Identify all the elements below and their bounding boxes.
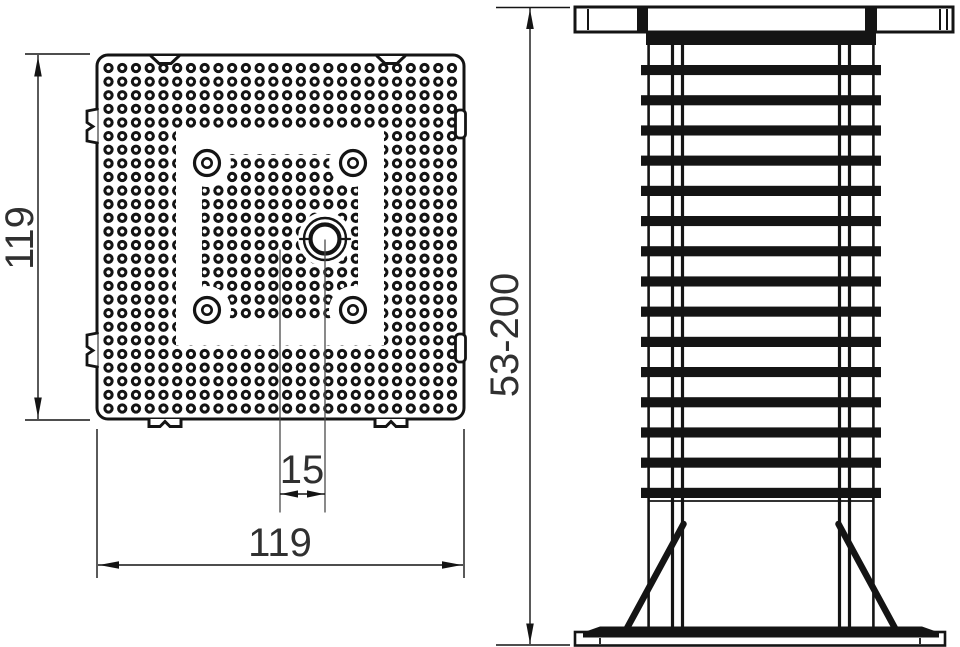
- perforation-dot-hole: [134, 80, 138, 84]
- perforation-dot-hole: [271, 297, 275, 301]
- perforation-dot-hole: [395, 325, 399, 329]
- perforation-dot-hole: [409, 393, 413, 397]
- perforation-dot-hole: [422, 175, 426, 179]
- perforation-dot-hole: [436, 243, 440, 247]
- perforation-dot-hole: [120, 393, 124, 397]
- top-flange: [575, 7, 953, 32]
- perforation-dot-hole: [161, 393, 165, 397]
- perforation-dot-hole: [106, 161, 110, 165]
- perforation-dot-hole: [436, 284, 440, 288]
- dim-height-range: 53-200: [483, 8, 570, 646]
- perforation-dot-hole: [203, 80, 207, 84]
- perforation-dot-hole: [409, 229, 413, 233]
- perforation-dot-hole: [354, 202, 358, 206]
- thread-groove: [646, 377, 876, 397]
- perforation-dot-hole: [354, 80, 358, 84]
- perforation-dot-hole: [230, 406, 234, 410]
- perforation-dot-hole: [409, 66, 413, 70]
- perforation-dot-hole: [161, 325, 165, 329]
- perforation-dot-hole: [148, 216, 152, 220]
- perforation-dot-hole: [340, 66, 344, 70]
- perforation-dot-hole: [258, 120, 262, 124]
- perforation-dot-hole: [134, 216, 138, 220]
- perforation-dot-hole: [271, 393, 275, 397]
- perforation-dot-hole: [409, 148, 413, 152]
- perforation-dot-hole: [326, 93, 330, 97]
- perforation-dot-hole: [313, 93, 317, 97]
- perforation-dot-hole: [271, 379, 275, 383]
- perforation-dot-hole: [395, 393, 399, 397]
- perforation-dot-hole: [216, 202, 220, 206]
- thread-ridge: [641, 397, 881, 407]
- perforation-dot-hole: [120, 188, 124, 192]
- perforation-dot-hole: [120, 270, 124, 274]
- perforation-dot-hole: [409, 120, 413, 124]
- perforation-dot-hole: [409, 188, 413, 192]
- perforation-dot-hole: [175, 352, 179, 356]
- perforation-dot-hole: [285, 257, 289, 261]
- perforation-dot-hole: [134, 243, 138, 247]
- perforation-dot-hole: [106, 297, 110, 301]
- perforation-dot-hole: [450, 216, 454, 220]
- perforation-dot-hole: [450, 393, 454, 397]
- perforation-dot-hole: [285, 297, 289, 301]
- perforation-dot-hole: [313, 270, 317, 274]
- perforation-dot-hole: [258, 80, 262, 84]
- perforation-dot-hole: [436, 93, 440, 97]
- perforation-dot-hole: [354, 188, 358, 192]
- perforation-dot-hole: [175, 80, 179, 84]
- perforation-dot-hole: [148, 366, 152, 370]
- boss-inner: [202, 158, 211, 167]
- perforation-dot-hole: [299, 297, 303, 301]
- perforation-dot-hole: [436, 175, 440, 179]
- perforation-dot-hole: [148, 80, 152, 84]
- arrowhead: [526, 624, 534, 644]
- perforation-dot-hole: [148, 297, 152, 301]
- perforation-dot-hole: [244, 243, 248, 247]
- perforation-dot-hole: [106, 134, 110, 138]
- thread-ridge: [641, 276, 881, 286]
- perforation-dot-hole: [106, 120, 110, 124]
- perforation-dot-hole: [134, 393, 138, 397]
- perforation-dot-hole: [203, 406, 207, 410]
- perforation-dot-hole: [134, 175, 138, 179]
- perforation-dot-hole: [203, 393, 207, 397]
- perforation-dot-hole: [134, 366, 138, 370]
- perforation-dot-hole: [354, 406, 358, 410]
- perforation-dot-hole: [436, 393, 440, 397]
- perforation-dot-hole: [230, 120, 234, 124]
- perforation-dot-hole: [203, 216, 207, 220]
- perforation-dot-hole: [436, 202, 440, 206]
- perforation-dot-hole: [120, 107, 124, 111]
- thread-groove: [646, 136, 876, 156]
- perforation-dot-hole: [230, 229, 234, 233]
- perforation-dot-hole: [285, 229, 289, 233]
- perforation-dot-hole: [230, 216, 234, 220]
- perforation-dot-hole: [148, 311, 152, 315]
- perforation-dot-hole: [106, 366, 110, 370]
- perforation-dot-hole: [450, 175, 454, 179]
- perforation-dot-hole: [313, 297, 317, 301]
- perforation-dot-hole: [148, 284, 152, 288]
- perforation-dot-hole: [203, 257, 207, 261]
- perforation-dot-hole: [148, 66, 152, 70]
- perforation-dot-hole: [409, 379, 413, 383]
- perforation-dot-hole: [120, 161, 124, 165]
- perforation-dot-hole: [354, 257, 358, 261]
- perforation-dot-hole: [106, 66, 110, 70]
- perforation-dot-hole: [134, 406, 138, 410]
- tab-bottom: [149, 419, 181, 427]
- thread-ridge: [641, 427, 881, 437]
- gusset-right: [839, 524, 897, 630]
- perforation-dot-hole: [106, 93, 110, 97]
- perforation-dot-hole: [436, 80, 440, 84]
- dim-center-offset: 15: [280, 448, 325, 498]
- perforation-dot-hole: [258, 202, 262, 206]
- perforation-dot-hole: [230, 352, 234, 356]
- perforation-dot-hole: [161, 257, 165, 261]
- perforation-dot-hole: [299, 352, 303, 356]
- perforation-dot-hole: [244, 352, 248, 356]
- perforation-dot-hole: [326, 80, 330, 84]
- perforation-dot-hole: [134, 257, 138, 261]
- perforation-dot-hole: [148, 352, 152, 356]
- perforation-dot-hole: [422, 202, 426, 206]
- perforation-dot-hole: [395, 229, 399, 233]
- perforation-dot-hole: [340, 93, 344, 97]
- perforation-dot-hole: [271, 270, 275, 274]
- perforation-dot-hole: [450, 338, 454, 342]
- perforation-dot-hole: [354, 120, 358, 124]
- perforation-dot-hole: [285, 202, 289, 206]
- perforation-dot-hole: [120, 175, 124, 179]
- perforation-dot-hole: [216, 66, 220, 70]
- perforation-dot-hole: [258, 243, 262, 247]
- perforation-dot-hole: [367, 393, 371, 397]
- perforation-dot-hole: [285, 80, 289, 84]
- perforation-dot-hole: [395, 175, 399, 179]
- perforation-dot-hole: [395, 188, 399, 192]
- perforation-dot-hole: [148, 338, 152, 342]
- perforation-dot-hole: [216, 379, 220, 383]
- perforation-dot-hole: [285, 188, 289, 192]
- drawing-canvas: 119 119 15: [0, 0, 960, 647]
- perforation-dot-hole: [203, 120, 207, 124]
- perforation-dot-hole: [409, 243, 413, 247]
- arrowhead: [526, 9, 534, 29]
- perforation-dot-hole: [340, 366, 344, 370]
- perforation-dot-hole: [285, 243, 289, 247]
- dim-label-height-range: 53-200: [483, 273, 527, 398]
- perforation-dot-hole: [313, 161, 317, 165]
- perforation-dot-hole: [161, 297, 165, 301]
- perforation-dot-hole: [422, 325, 426, 329]
- perforation-dot-hole: [106, 270, 110, 274]
- perforation-dot-hole: [381, 366, 385, 370]
- thread-ridge: [641, 125, 881, 135]
- perforation-dot-hole: [409, 216, 413, 220]
- perforation-dot-hole: [120, 325, 124, 329]
- perforation-dot-hole: [409, 352, 413, 356]
- perforation-dot-hole: [381, 393, 385, 397]
- perforation-dot-hole: [436, 366, 440, 370]
- perforation-dot-hole: [409, 175, 413, 179]
- perforation-dot-hole: [258, 66, 262, 70]
- perforation-dot-hole: [340, 80, 344, 84]
- perforation-dot-hole: [326, 297, 330, 301]
- perforation-dot-hole: [340, 202, 344, 206]
- perforation-dot-hole: [161, 352, 165, 356]
- perforation-dot-hole: [244, 229, 248, 233]
- thread-groove: [646, 287, 876, 307]
- perforation-dot-hole: [258, 284, 262, 288]
- perforation-dot-hole: [161, 175, 165, 179]
- perforation-dot-hole: [299, 107, 303, 111]
- perforation-dot-hole: [230, 107, 234, 111]
- perforation-dot-hole: [422, 352, 426, 356]
- perforation-dot-hole: [354, 352, 358, 356]
- perforation-dot-hole: [299, 66, 303, 70]
- perforation-dot-hole: [230, 66, 234, 70]
- perforation-dot-hole: [161, 161, 165, 165]
- perforation-dot-hole: [161, 80, 165, 84]
- perforation-dot-hole: [340, 120, 344, 124]
- perforation-dot-hole: [203, 366, 207, 370]
- perforation-dot-hole: [285, 284, 289, 288]
- perforation-dot-hole: [367, 80, 371, 84]
- perforation-dot-hole: [271, 93, 275, 97]
- perforation-dot-hole: [120, 80, 124, 84]
- perforation-dot-hole: [189, 379, 193, 383]
- perforation-dot-hole: [271, 66, 275, 70]
- perforation-dot-hole: [436, 120, 440, 124]
- perforation-dot-hole: [216, 393, 220, 397]
- perforation-dot-hole: [409, 107, 413, 111]
- perforation-dot-hole: [120, 366, 124, 370]
- base-plate: [575, 627, 945, 646]
- perforation-dot-hole: [244, 257, 248, 261]
- perforation-dot-hole: [189, 107, 193, 111]
- perforation-dot-hole: [216, 243, 220, 247]
- perforation-dot-hole: [299, 257, 303, 261]
- thread-stack: [641, 45, 881, 498]
- perforation-dot-hole: [216, 229, 220, 233]
- perforation-dot-hole: [216, 80, 220, 84]
- perforation-dot-hole: [148, 379, 152, 383]
- perforation-dot-hole: [299, 366, 303, 370]
- perforation-dot-hole: [340, 270, 344, 274]
- perforation-dot-hole: [313, 188, 317, 192]
- perforation-dot-hole: [395, 352, 399, 356]
- perforation-dot-hole: [230, 80, 234, 84]
- perforation-dot-hole: [148, 257, 152, 261]
- perforation-dot-hole: [313, 366, 317, 370]
- perforation-dot-hole: [436, 379, 440, 383]
- perforation-dot-hole: [367, 107, 371, 111]
- perforation-dot-hole: [203, 188, 207, 192]
- perforation-dot-hole: [216, 216, 220, 220]
- perforation-dot-hole: [313, 284, 317, 288]
- perforation-dot-hole: [258, 161, 262, 165]
- perforation-dot-hole: [436, 352, 440, 356]
- perforation-dot-hole: [367, 366, 371, 370]
- perforation-dot-hole: [258, 366, 262, 370]
- perforation-dot-hole: [258, 270, 262, 274]
- arrowhead: [34, 57, 42, 77]
- perforation-dot-hole: [422, 270, 426, 274]
- perforation-dot-hole: [409, 202, 413, 206]
- perforation-dot-hole: [436, 107, 440, 111]
- perforation-dot-hole: [106, 284, 110, 288]
- perforation-dot-hole: [244, 311, 248, 315]
- perforation-dot-hole: [422, 188, 426, 192]
- perforation-dot-hole: [134, 134, 138, 138]
- perforation-dot-hole: [436, 229, 440, 233]
- perforation-dot-hole: [450, 148, 454, 152]
- perforation-dot-hole: [313, 107, 317, 111]
- perforation-dot-hole: [409, 284, 413, 288]
- perforation-dot-hole: [367, 66, 371, 70]
- perforation-dot-hole: [422, 107, 426, 111]
- thread-groove: [646, 317, 876, 337]
- perforation-dot-hole: [203, 352, 207, 356]
- perforation-dot-hole: [450, 284, 454, 288]
- perforation-dot-hole: [244, 297, 248, 301]
- top-view: [87, 55, 466, 512]
- perforation-dot-hole: [189, 93, 193, 97]
- perforation-dot-hole: [340, 406, 344, 410]
- perforation-dot-hole: [299, 393, 303, 397]
- perforation-dot-hole: [409, 80, 413, 84]
- perforation-dot-hole: [409, 93, 413, 97]
- perforation-dot-hole: [106, 352, 110, 356]
- perforation-dot-hole: [175, 366, 179, 370]
- perforation-dot-hole: [258, 379, 262, 383]
- perforation-dot-hole: [299, 216, 303, 220]
- perforation-dot-hole: [436, 338, 440, 342]
- perforation-dot-hole: [326, 202, 330, 206]
- perforation-dot-hole: [367, 379, 371, 383]
- thread-ridge: [641, 216, 881, 226]
- perforation-dot-hole: [395, 243, 399, 247]
- perforation-dot-hole: [271, 257, 275, 261]
- perforation-dot-hole: [409, 338, 413, 342]
- perforation-dot-hole: [120, 93, 124, 97]
- perforation-dot-hole: [148, 270, 152, 274]
- perforation-dot-hole: [313, 120, 317, 124]
- perforation-dot-hole: [285, 66, 289, 70]
- perforation-dot-hole: [189, 80, 193, 84]
- perforation-dot-hole: [313, 311, 317, 315]
- perforation-dot-hole: [106, 175, 110, 179]
- perforation-dot-hole: [395, 161, 399, 165]
- perforation-dot-hole: [258, 257, 262, 261]
- perforation-dot-hole: [244, 188, 248, 192]
- perforation-dot-hole: [395, 134, 399, 138]
- perforation-dot-hole: [436, 297, 440, 301]
- perforation-dot-hole: [299, 161, 303, 165]
- perforation-dot-hole: [285, 379, 289, 383]
- perforation-dot-hole: [354, 93, 358, 97]
- perforation-dot-hole: [230, 393, 234, 397]
- thread-groove: [646, 166, 876, 186]
- perforation-dot-hole: [326, 270, 330, 274]
- perforation-dot-hole: [258, 393, 262, 397]
- perforation-dot-hole: [395, 366, 399, 370]
- perforation-dot-hole: [189, 406, 193, 410]
- dim-label-height: 119: [0, 206, 42, 270]
- perforation-dot-hole: [422, 297, 426, 301]
- perforation-dot-hole: [271, 80, 275, 84]
- perforation-dot-hole: [258, 229, 262, 233]
- perforation-dot-hole: [326, 175, 330, 179]
- perforation-dot-hole: [203, 93, 207, 97]
- thread-groove: [646, 45, 876, 65]
- perforation-dot-hole: [106, 188, 110, 192]
- arrowhead: [442, 561, 462, 569]
- perforation-dot-hole: [313, 379, 317, 383]
- perforation-dot-hole: [354, 366, 358, 370]
- perforation-dot-hole: [161, 134, 165, 138]
- perforation-dot-hole: [244, 80, 248, 84]
- perforation-dot-hole: [450, 188, 454, 192]
- perforation-dot-hole: [409, 161, 413, 165]
- perforation-dot-hole: [120, 120, 124, 124]
- perforation-dot-hole: [189, 393, 193, 397]
- perforation-dot-hole: [285, 216, 289, 220]
- perforation-dot-hole: [120, 297, 124, 301]
- perforation-dot-hole: [244, 93, 248, 97]
- perforation-dot-hole: [450, 243, 454, 247]
- perforation-dot-hole: [134, 270, 138, 274]
- perforation-dot-hole: [175, 66, 179, 70]
- perforation-dot-hole: [436, 257, 440, 261]
- perforation-dot-hole: [450, 134, 454, 138]
- perforation-dot-hole: [106, 148, 110, 152]
- perforation-dot-hole: [161, 243, 165, 247]
- perforation-dot-hole: [340, 284, 344, 288]
- perforation-dot-hole: [134, 325, 138, 329]
- dim-label-width: 119: [248, 521, 312, 565]
- perforation-dot-hole: [313, 66, 317, 70]
- perforation-dot-hole: [175, 379, 179, 383]
- perforation-dot-hole: [354, 393, 358, 397]
- perforation-dot-hole: [216, 352, 220, 356]
- perforation-dot-hole: [409, 257, 413, 261]
- perforation-dot-hole: [422, 80, 426, 84]
- perforation-dot-hole: [326, 66, 330, 70]
- perforation-dot-hole: [203, 379, 207, 383]
- thread-groove: [646, 105, 876, 125]
- boss-inner: [348, 158, 357, 167]
- perforation-dot-hole: [395, 270, 399, 274]
- perforation-dot-hole: [161, 202, 165, 206]
- perforation-dot-hole: [161, 311, 165, 315]
- perforation-dot-hole: [354, 379, 358, 383]
- perforation-dot-hole: [161, 338, 165, 342]
- perforation-dot-hole: [422, 366, 426, 370]
- perforation-dot-hole: [299, 311, 303, 315]
- base-top-surface: [583, 627, 939, 638]
- perforation-dot-hole: [244, 379, 248, 383]
- perforation-dot-hole: [258, 406, 262, 410]
- perforation-dot-hole: [450, 297, 454, 301]
- perforation-dot-hole: [395, 202, 399, 206]
- perforation-dot-hole: [367, 352, 371, 356]
